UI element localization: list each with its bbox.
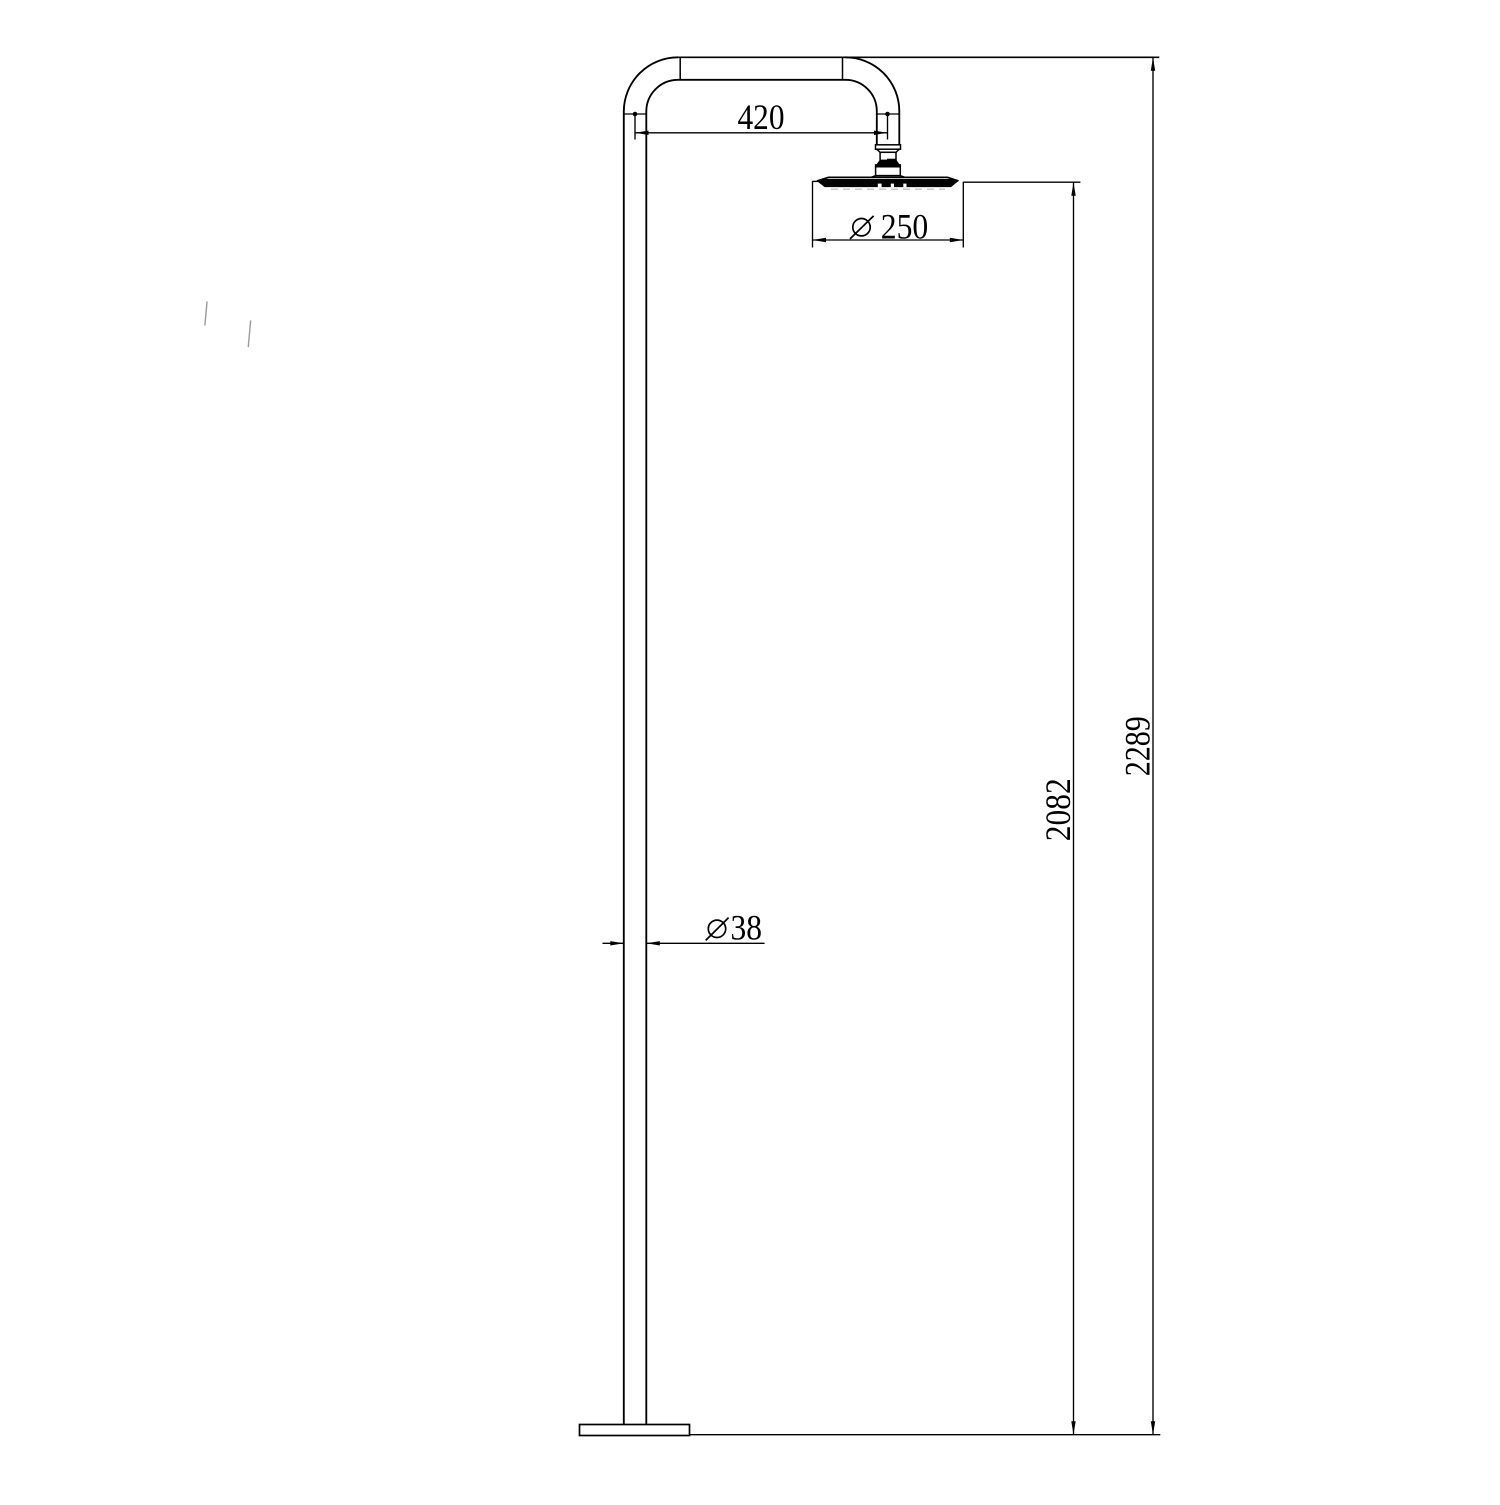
svg-text:2289: 2289 xyxy=(1118,716,1158,776)
svg-text:38: 38 xyxy=(731,908,763,948)
svg-text:420: 420 xyxy=(738,97,785,137)
svg-text:2082: 2082 xyxy=(1038,778,1078,841)
svg-text:250: 250 xyxy=(881,207,929,247)
